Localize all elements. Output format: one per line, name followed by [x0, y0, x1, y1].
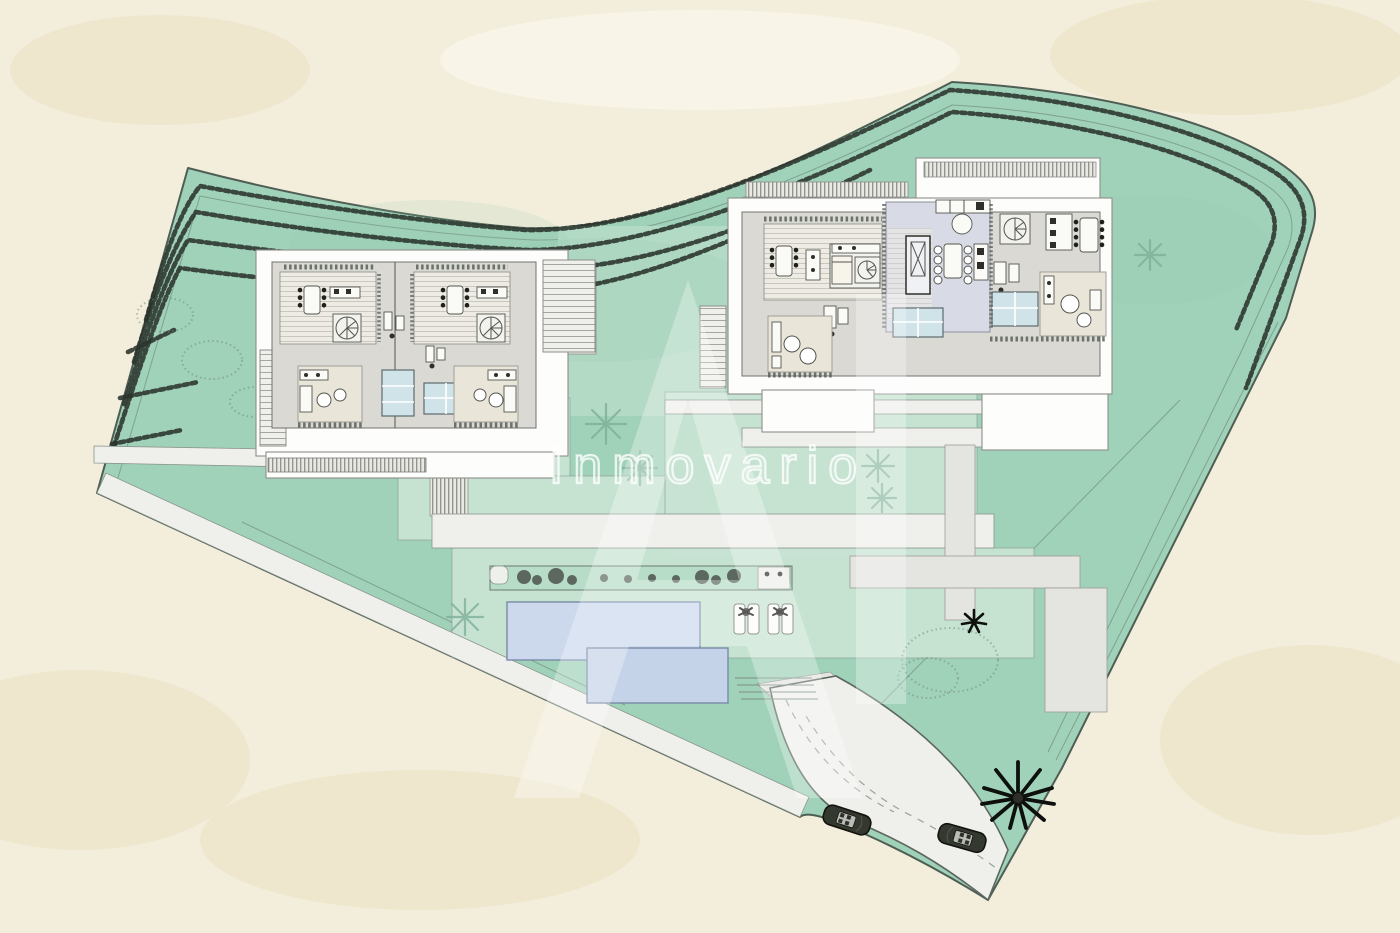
villa-1	[256, 250, 595, 478]
sofa-seat	[800, 348, 816, 364]
sofa-seat	[489, 393, 503, 407]
watermark-brand-text: Inmovario	[549, 437, 867, 495]
site-plan-drawing: AI Inmovario	[0, 0, 1400, 933]
palm-trunk	[1013, 793, 1023, 803]
villa-2-north-stairs	[746, 182, 908, 197]
pool-terrace-path	[432, 514, 994, 548]
glazed-courtyard	[382, 370, 414, 416]
villa-2-north-stairs	[924, 162, 1096, 177]
villa-1-pergola-louvers	[268, 458, 426, 472]
spiral-staircase	[1000, 214, 1030, 244]
sofa-seat	[784, 336, 800, 352]
living-terrace	[454, 366, 518, 422]
villa-2-terrace-south-east	[982, 394, 1108, 450]
paper-texture-blotch	[10, 15, 310, 125]
sofa-seat	[1077, 313, 1091, 327]
kitchen-counter	[477, 287, 507, 298]
driveway-path-vertical	[945, 445, 975, 620]
cabinet	[974, 244, 988, 280]
sofa-seat	[474, 389, 486, 401]
dining-table-chairs	[934, 244, 972, 284]
kitchen-counter	[330, 287, 360, 298]
villa-1-east-stairs	[543, 260, 595, 352]
watermark-monogram-bar	[856, 294, 906, 704]
kitchen-island	[806, 250, 820, 280]
living-terrace	[1040, 272, 1106, 336]
planter-corner-pad	[490, 566, 508, 584]
driveway-leg	[1045, 588, 1107, 712]
dining-table-chairs	[1076, 218, 1102, 252]
living-terrace	[298, 366, 362, 422]
spiral-staircase	[855, 257, 880, 283]
bedroom-suite	[830, 244, 880, 288]
bed	[832, 256, 852, 284]
dining-table-chairs	[443, 286, 467, 314]
tree-icon	[1135, 240, 1165, 270]
site-plan-page: AI Inmovario	[0, 0, 1400, 933]
sofa-seat	[1061, 295, 1079, 313]
elevator	[906, 236, 930, 294]
kitchen-cabinets	[936, 200, 990, 213]
sofa-seat	[317, 393, 331, 407]
paper-texture-blotch	[440, 10, 960, 110]
dining-table-chairs	[772, 246, 796, 276]
round-table	[952, 214, 972, 234]
villa-1-deck-west	[280, 272, 376, 344]
glazed-courtyard	[992, 292, 1038, 326]
spiral-staircase	[333, 314, 361, 342]
kitchen-counter	[1046, 214, 1072, 250]
living-terrace	[768, 316, 832, 372]
spiral-staircase	[477, 314, 505, 342]
sofa-seat	[334, 389, 346, 401]
tree-icon	[447, 599, 483, 635]
dining-table-chairs	[300, 286, 324, 314]
